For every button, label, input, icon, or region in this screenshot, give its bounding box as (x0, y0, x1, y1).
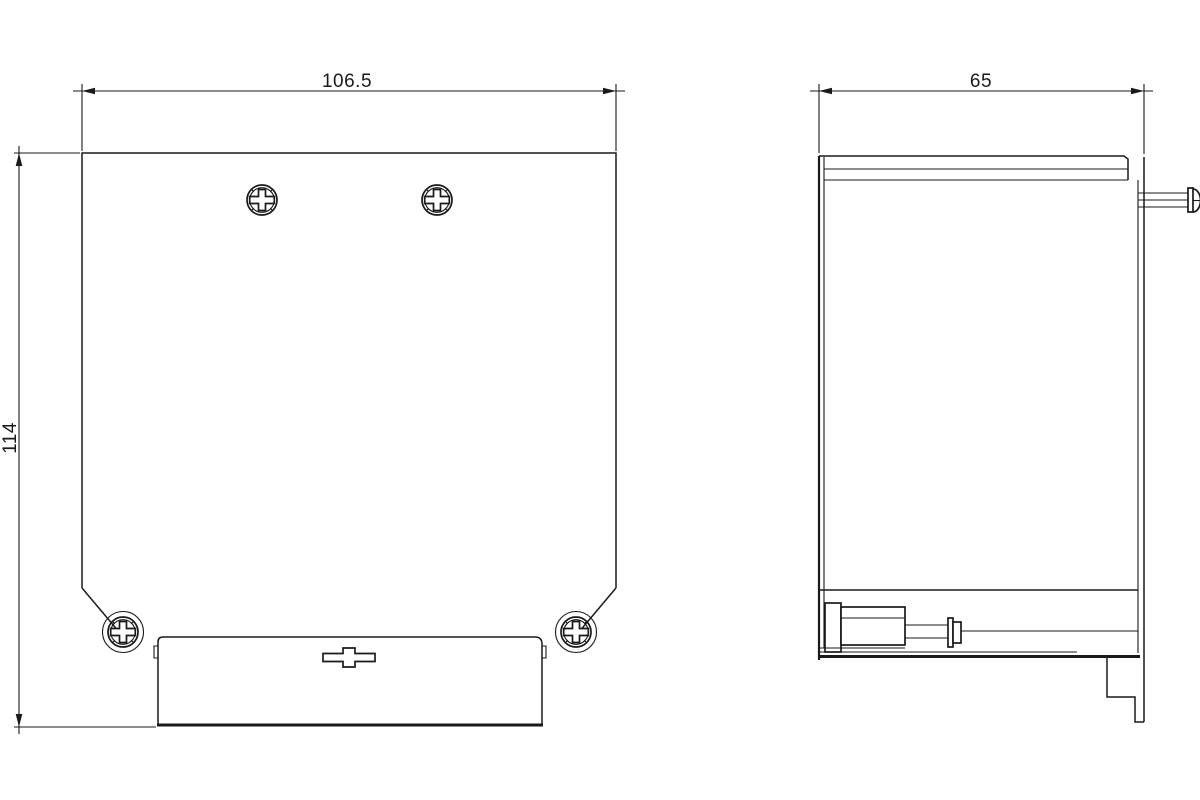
dim-front-height-value: 114 (0, 422, 21, 454)
mounting-screw-top-left (247, 185, 277, 215)
terminal-screw-side (1138, 188, 1200, 212)
corner-boss-bottom-left (103, 612, 144, 653)
dim-side-depth-value: 65 (970, 71, 992, 92)
side-view (819, 156, 1200, 722)
technical-drawing-canvas: 106.5 114 65 (0, 0, 1200, 800)
mounting-screw-top-right (422, 185, 452, 215)
corner-boss-bottom-right (556, 612, 597, 653)
dim-front-width-value: 106.5 (322, 71, 372, 92)
top-plate (819, 156, 1128, 180)
dim-side-depth: 65 (810, 71, 1153, 154)
front-body-outline (82, 153, 616, 639)
terminal-cover (154, 637, 546, 725)
din-foot (1107, 657, 1144, 722)
side-bottom (819, 648, 1144, 722)
front-view (82, 153, 616, 725)
dim-front-width: 106.5 (73, 71, 625, 151)
sealing-tab (323, 648, 375, 667)
dim-front-height: 114 (0, 146, 156, 734)
din-rail-clip (825, 603, 1138, 652)
